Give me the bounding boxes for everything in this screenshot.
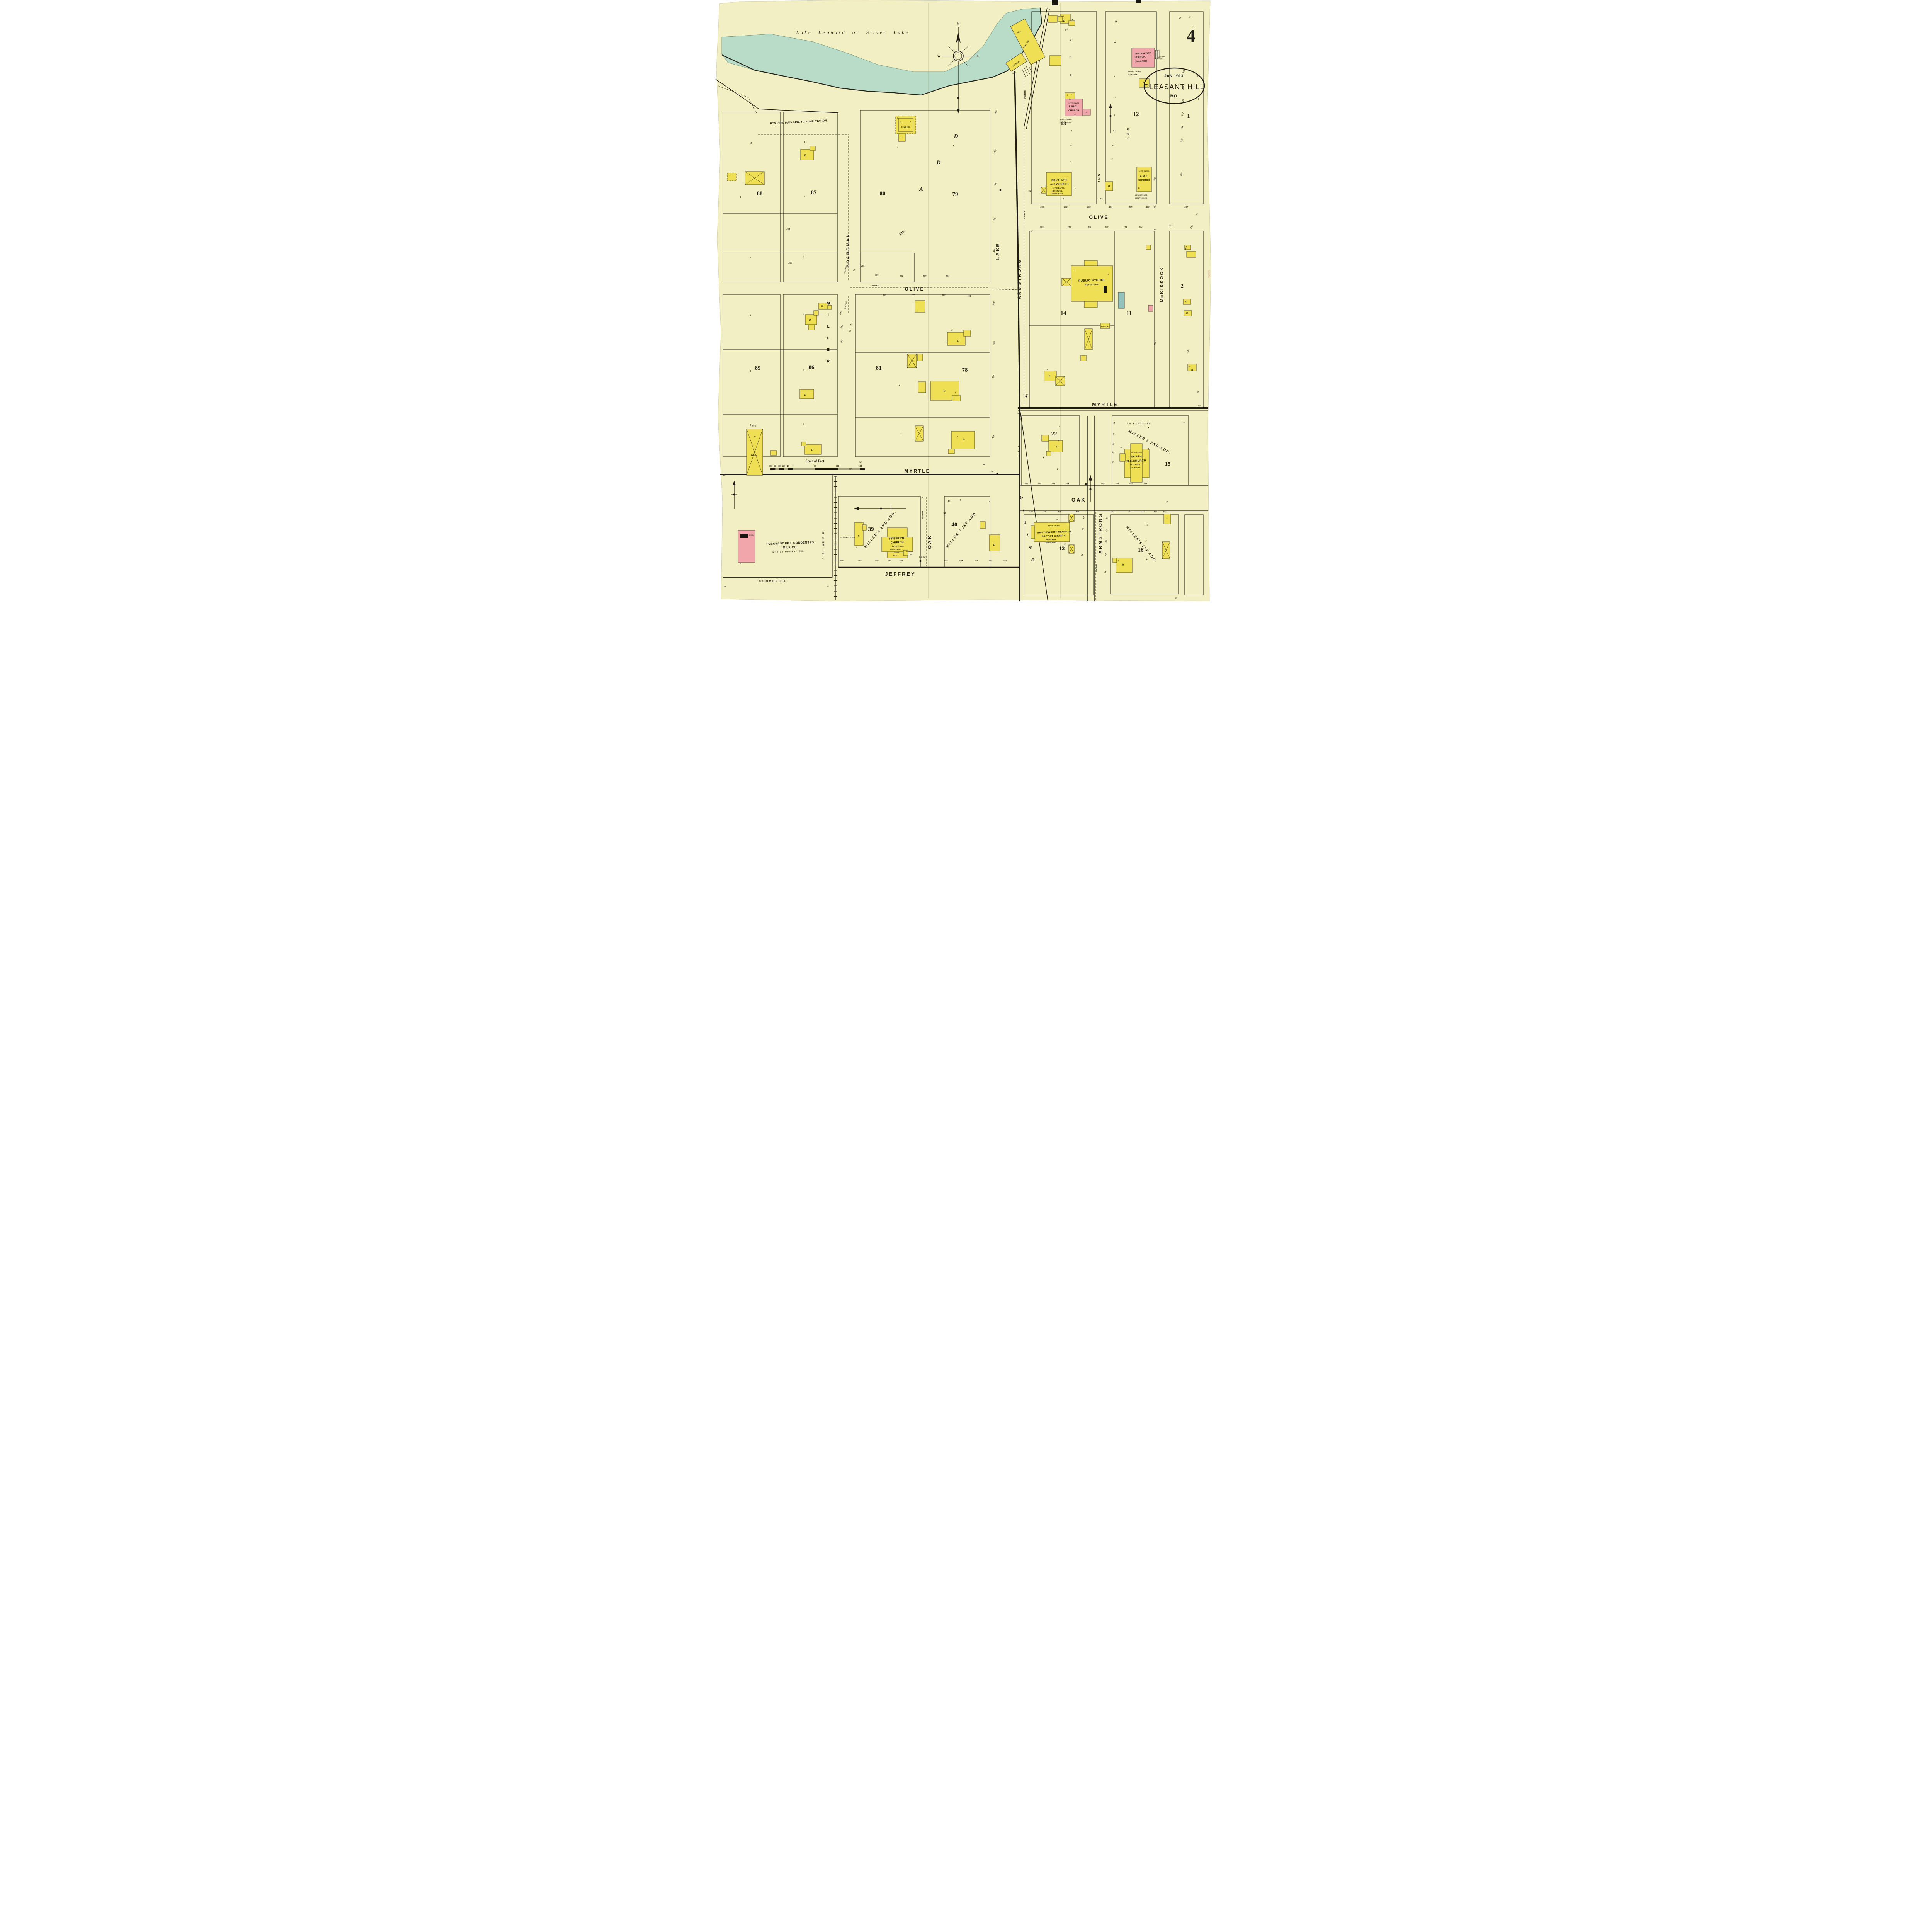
block-number-40: 40 (951, 522, 957, 528)
building (800, 389, 814, 399)
map-label: 211 (1087, 226, 1091, 229)
building (740, 534, 748, 538)
map-label: NORTH (1131, 455, 1141, 459)
building-footprint (917, 354, 923, 361)
map-label: 3 (750, 142, 752, 145)
compass-dot (957, 97, 959, 99)
map-label: 112 (1075, 511, 1079, 513)
building-footprint (1052, 0, 1058, 5)
map-label: 214 (1138, 226, 1142, 229)
building (814, 311, 818, 315)
map-label: D (943, 389, 945, 393)
map-label: 4"W.PIPE (1096, 564, 1098, 572)
building (898, 134, 905, 141)
building-footprint (1081, 355, 1086, 361)
building (1136, 0, 1141, 3)
map-label: 207 (887, 560, 891, 562)
scale-bar-segment (788, 468, 793, 470)
scale-bar-segment (784, 468, 788, 470)
map-label: 4"W.PIPE (922, 510, 924, 519)
building (801, 442, 806, 446)
map-date: JAN.1913. (1164, 74, 1184, 78)
block-number-15: 15 (1165, 461, 1170, 467)
map-label: 9 (1064, 543, 1065, 546)
building (855, 522, 863, 546)
building-footprint (801, 442, 806, 446)
map-label: D (808, 318, 811, 321)
map-label: 205 (944, 560, 947, 562)
map-label: 60' (983, 464, 986, 466)
map-label: 3 (1058, 426, 1060, 428)
scale-tick-label: 20 (782, 465, 785, 468)
map-label: 15'TO EAVES. (892, 545, 904, 547)
building (727, 173, 736, 181)
map-label: 206 (899, 560, 903, 562)
building (964, 330, 971, 336)
map-label: CHURCH (1138, 179, 1150, 182)
map-label: 10 (1069, 39, 1071, 42)
map-label: 103 (1051, 483, 1055, 485)
building (770, 451, 777, 455)
map-label: 50' (1179, 17, 1181, 19)
map-label: 204 (959, 560, 963, 562)
block-number-14: 14 (1060, 310, 1066, 316)
map-label: 9 (960, 499, 961, 502)
building-footprint (1187, 251, 1196, 257)
map-label: 16'TO EAVES. (1048, 525, 1060, 527)
building (1049, 440, 1063, 452)
map-label: 104 (946, 275, 949, 277)
map-label: 2 (1107, 274, 1109, 276)
map-label: HEAT:STOVES. (1135, 194, 1147, 196)
map-label: TOWER. (906, 550, 913, 552)
map-label: D (1048, 375, 1050, 378)
map-label: 1 (803, 423, 804, 426)
map-label: D (957, 339, 959, 342)
map-label: 4 (1112, 145, 1113, 147)
compass-e-label: E (976, 54, 978, 58)
building (1069, 545, 1074, 553)
map-label: 2 (900, 121, 901, 123)
building-footprint (947, 332, 965, 345)
map-label: 20' (1174, 598, 1177, 600)
building-footprint (1136, 0, 1141, 3)
map-label: 215 (1168, 225, 1172, 227)
scale-tick-label: 100 (836, 465, 839, 468)
map-label: HEAT:STOVES (1128, 70, 1140, 72)
block-number-88: 88 (757, 190, 762, 197)
building-footprint (1084, 260, 1097, 266)
building (1031, 526, 1035, 539)
scale-bar-segment (770, 468, 775, 470)
block-number-81: 81 (876, 365, 881, 371)
pencil-annotation: 35053 (1207, 270, 1211, 278)
map-label: 109 (1029, 511, 1032, 513)
map-label: 1½ (1061, 16, 1064, 18)
map-label: 3 (951, 329, 952, 332)
map-label: 4 (1147, 427, 1149, 429)
block-number-22: 22 (1051, 431, 1057, 437)
map-label: 104 (1065, 483, 1069, 485)
map-label: 6"W.PIPE (1024, 90, 1026, 99)
street-name-olive: OLIVE (905, 286, 924, 292)
map-label: 1 (900, 137, 901, 139)
street-name-boardman: BOARDMAN (846, 233, 850, 267)
map-label: 10 (943, 512, 946, 515)
building (1148, 305, 1153, 311)
building-footprint (814, 311, 818, 315)
map-label: 210 (839, 560, 843, 562)
map-label: Scale of Feet. (805, 459, 825, 463)
scale-tick-label: 150 (858, 465, 862, 468)
map-label: 10' (1056, 519, 1059, 521)
building-footprint (964, 330, 971, 336)
map-label: 210 (1067, 226, 1071, 229)
map-label: 50' (849, 330, 851, 332)
map-label: ELEC. (893, 554, 899, 556)
building-footprint (808, 325, 815, 330)
map-label: 1 (1057, 468, 1058, 471)
map-label: 209 (1039, 226, 1043, 229)
map-label: 1 (803, 256, 804, 258)
building (1131, 444, 1142, 482)
building-footprint (855, 522, 863, 546)
map-label: 2 (803, 196, 805, 198)
map-label: D (821, 305, 823, 308)
map-label: 2 (1074, 270, 1075, 272)
building-footprint (918, 382, 926, 393)
map-label: CLUB HO. (901, 126, 910, 128)
building (980, 522, 985, 529)
street-name-c-r-i-p-r-r-: C.R.I.&P.R.R. (822, 529, 825, 560)
map-label: NO EXPOSURE (1126, 423, 1151, 425)
street-name-miller-letter: L (827, 336, 830, 340)
map-label: HEAT:FURN. (1130, 464, 1141, 466)
map-label: 1 (750, 424, 751, 427)
building (1046, 451, 1051, 456)
map-label: 1½ (1188, 366, 1190, 367)
building (1056, 376, 1065, 386)
hydrant-dot (919, 560, 921, 562)
hydrant-dot (1085, 483, 1087, 485)
map-label: LIGHTS:ELEC. (1044, 541, 1057, 543)
map-label: 50' (859, 462, 862, 464)
map-label: D (1107, 185, 1110, 188)
map-canvas: 5040302010050100150OLIVEOLIVEMYRTLEMYRTL… (713, 0, 1220, 601)
building (1118, 292, 1124, 308)
map-label: 8 (1146, 559, 1147, 561)
map-label: 11 (1071, 19, 1073, 21)
map-label: A (918, 186, 923, 192)
building (828, 305, 832, 309)
hydrant-dot (999, 189, 1001, 191)
map-label: LIGHT:ELEC (1130, 467, 1141, 469)
street-name-jeffrey: JEFFREY (885, 571, 916, 577)
map-label: D.H. 50' (918, 557, 926, 559)
map-label: 8 (1114, 76, 1115, 78)
map-label: 10 (948, 500, 950, 502)
map-label: 18'TO EAVES (1131, 451, 1142, 453)
building (915, 301, 925, 312)
map-label: (COLORED) (1134, 60, 1147, 63)
map-label: 209 (857, 560, 861, 562)
sanborn-map-page: 5040302010050100150OLIVEOLIVEMYRTLEMYRTL… (713, 0, 1220, 601)
building-footprint (828, 305, 832, 309)
map-label: D (962, 438, 964, 441)
building-footprint (1120, 454, 1125, 461)
building (1146, 245, 1151, 250)
map-label: EPISCL. (1069, 106, 1078, 108)
street-name-mckissock: McKISSOCK (1160, 267, 1164, 302)
hydrant-dot (1025, 396, 1027, 398)
map-label: 2 (896, 118, 898, 120)
building (1069, 514, 1074, 522)
map-label: MILK CO. (782, 545, 798, 549)
building-footprint (1131, 444, 1142, 482)
building (1041, 187, 1046, 193)
map-label: 114 (1128, 511, 1131, 513)
block-number-80: 80 (879, 190, 885, 197)
map-label: M.E.CHURCH (1126, 459, 1146, 463)
map-label: 212 (1104, 226, 1108, 229)
building-footprint (915, 301, 925, 312)
map-label: D (811, 448, 813, 451)
map-label: 201 (1040, 206, 1044, 209)
building-footprint (862, 525, 866, 530)
building (1113, 558, 1117, 563)
building (1104, 286, 1107, 293)
building (810, 146, 815, 151)
map-label: 5 (1113, 130, 1114, 132)
building (805, 315, 817, 325)
map-label: 213 (1123, 226, 1127, 229)
block-number-86: 86 (808, 364, 815, 371)
building (918, 382, 926, 393)
block-number-1: 1 (1187, 113, 1190, 119)
map-label: D (1121, 563, 1124, 566)
map-label: 2 (954, 392, 956, 394)
map-label: 6 (1074, 114, 1075, 116)
building-footprint (770, 451, 777, 455)
map-label: 20' (1182, 422, 1185, 424)
map-label: 4 (1042, 457, 1044, 459)
map-label: 6"W.PIPE (1023, 211, 1025, 219)
map-label: 60' (1195, 214, 1198, 216)
map-label: 3 (803, 314, 804, 316)
scale-bar-segment (815, 468, 838, 470)
building (1187, 251, 1196, 257)
map-label: 1 (1063, 198, 1064, 200)
scale-tick-label: 10 (787, 465, 789, 468)
building (947, 332, 965, 345)
map-label: 4 (1070, 145, 1071, 147)
map-label: 202 (988, 560, 992, 562)
building-footprint (898, 134, 905, 141)
map-label: 40'TO-1½ST.FR.D (840, 536, 855, 538)
map-label: WOOD HO (1101, 326, 1109, 327)
map-label: 107 (1129, 483, 1133, 485)
scale-bar-segment (860, 468, 865, 470)
map-label: 45' (849, 324, 852, 326)
building (808, 325, 815, 330)
map-label: D.H. (1088, 480, 1092, 482)
map-label: D.H. (990, 471, 994, 473)
map-label: 50' (1188, 17, 1191, 19)
map-label: D (857, 535, 859, 538)
map-label: 60' (1030, 231, 1033, 233)
map-label: LIGHTS:ELEC. (1135, 197, 1147, 199)
map-label: D (1185, 300, 1187, 303)
map-label: 3 (1111, 158, 1112, 161)
map-label: 60' (1154, 229, 1156, 231)
map-label: 107 (942, 294, 946, 297)
map-label: 1½ (754, 436, 756, 438)
building (1085, 329, 1092, 350)
street-name-oak: OAK (927, 534, 932, 549)
map-label: 8 (1070, 74, 1071, 77)
block-number-2: 2 (1180, 283, 1184, 289)
block-number-11: 11 (1126, 310, 1131, 316)
map-label: 60' (723, 475, 725, 477)
map-label: 103 (923, 275, 926, 277)
map-label: 3 (896, 147, 898, 149)
block-number-78: 78 (962, 367, 968, 373)
map-label: SOUTHERN (1051, 179, 1067, 182)
building-footprint (1046, 451, 1051, 456)
map-label: 2 (1117, 560, 1119, 562)
building-footprint (1113, 558, 1117, 563)
map-label: 11 (1115, 21, 1117, 23)
building-footprint (1049, 440, 1063, 452)
map-label: 204 (786, 228, 790, 230)
map-label: 60' (1196, 391, 1199, 393)
building (948, 449, 954, 454)
map-label: 9 (1145, 540, 1146, 543)
map-label: 3 (952, 145, 954, 147)
map-label: CHURCH (1068, 110, 1079, 112)
map-label: 106 (912, 294, 915, 296)
map-label: D (993, 543, 995, 546)
street-name-miller-letter: R (827, 359, 830, 364)
map-label: 206 (1145, 206, 1149, 209)
map-label: 6 (1114, 114, 1115, 117)
map-label: 113 (1111, 511, 1114, 513)
map-label: 3 (749, 315, 751, 317)
map-label: 3 (803, 141, 805, 144)
building (1120, 454, 1125, 461)
map-label: HEAT:FURN. (890, 548, 901, 550)
map-label: 1½ (1138, 187, 1140, 189)
map-label: D (1185, 312, 1188, 315)
building-footprint (1048, 15, 1057, 22)
map-label: 2 (898, 384, 900, 386)
building-footprint (952, 396, 961, 401)
map-label: 110 (1042, 511, 1046, 513)
map-label: 40' (1120, 447, 1122, 449)
map-label: HEAT:FURN. (1046, 538, 1056, 540)
block-number-12: 12 (1133, 111, 1139, 117)
map-label: CHURCH. (1134, 56, 1146, 58)
map-label: 1 (740, 563, 741, 565)
building-footprint (740, 534, 748, 538)
compass-w-label: W (937, 54, 940, 58)
map-label: D (1063, 19, 1065, 22)
map-label: D (1190, 369, 1193, 372)
street-name-myrtle: MYRTLE (904, 468, 930, 474)
street-name-alley: ALLEY (1018, 444, 1020, 456)
block-number-89: 89 (755, 365, 760, 371)
map-label: 2 (1058, 440, 1059, 442)
map-label: 102 (1037, 483, 1041, 485)
map-label: 2 (1074, 188, 1075, 190)
street-name-commercial: COMMERCIAL (759, 580, 789, 583)
map-label: 5 (1071, 130, 1072, 132)
block-number-12: 12 (1059, 546, 1065, 552)
map-label: 2 (739, 196, 741, 199)
building (898, 118, 913, 131)
street-name-armstrong: ARMSTRONG (1098, 513, 1103, 554)
map-label: 10 (1113, 42, 1116, 44)
map-label: 2 (1046, 369, 1048, 371)
map-label: 221½ (751, 425, 756, 427)
map-label: 50' (920, 497, 923, 499)
map-label: HEAT:FURN. (1052, 190, 1063, 192)
map-label: 105 (1101, 483, 1104, 485)
building-footprint (1049, 56, 1061, 66)
map-label: D (804, 393, 806, 396)
map-label: HEAT:STOVES. (1059, 118, 1071, 120)
map-label: 115 (1141, 511, 1145, 513)
map-label: 50' (849, 469, 852, 471)
map-label: 9 (1069, 56, 1070, 58)
building (1049, 56, 1061, 66)
map-label: 1 (750, 257, 751, 259)
building (989, 535, 1000, 551)
scale-tick-label: 0 (792, 465, 793, 468)
map-label: 60' (826, 586, 829, 588)
building (1069, 21, 1075, 26)
map-label: 101 (1024, 483, 1028, 485)
street-name-armstrong: ARMSTRONG (1017, 259, 1022, 299)
map-label: 204 (1108, 206, 1112, 209)
map-label: 15'TO EAVES. (1053, 187, 1065, 189)
map-label: 108 (1143, 483, 1147, 485)
building (952, 396, 961, 401)
scale-tick-label: 40 (774, 465, 776, 468)
block-number-16: 16 (1138, 547, 1144, 553)
map-label: 8 (1198, 98, 1199, 100)
street-name-miller-letter: M (827, 301, 831, 306)
map-label: LIGHTS:ELEC. (1051, 193, 1063, 195)
map-label: 60' (723, 586, 726, 588)
map-label: Lake Leonard or Silver Lake (796, 29, 909, 35)
street-name-myrtle: MYRTLE (1092, 402, 1118, 407)
building-footprint (948, 449, 954, 454)
map-label: D (1056, 445, 1058, 448)
map-label: 117 (1163, 511, 1167, 513)
arrow-dot (880, 507, 882, 509)
map-label: LIGHT:ELEC. (1128, 73, 1139, 75)
map-label: 208 (874, 560, 878, 562)
building-footprint (810, 146, 815, 151)
map-label: Private. (751, 454, 758, 457)
building (745, 172, 764, 185)
map-label: 1 (900, 432, 901, 434)
building-footprint (1148, 305, 1153, 311)
map-label: 6"W.PIPE. (870, 284, 879, 286)
map-label: LIGHTS:ELEC. (1060, 121, 1071, 123)
map-label: 1 (855, 546, 856, 548)
